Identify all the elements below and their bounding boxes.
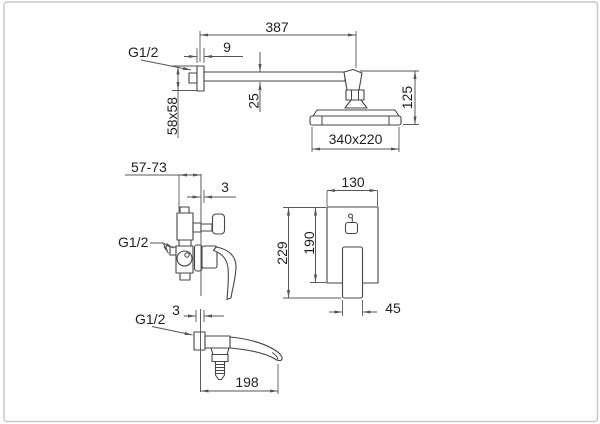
diverter-knob-front xyxy=(346,223,358,234)
spout-under-flange xyxy=(212,355,228,362)
diverter-body xyxy=(177,213,193,240)
dim-plate-width-label: 130 xyxy=(341,174,365,190)
wall-flange xyxy=(197,66,204,91)
shower-arm xyxy=(204,72,345,81)
diverter-knob xyxy=(213,214,225,234)
dimensional-drawing-svg: 387 G1/2 9 25 58x58 125 340x220 xyxy=(0,0,600,424)
dim-spout-length-label: 198 xyxy=(235,374,259,390)
mixer-side-view: 57-73 3 G1/2 xyxy=(118,159,236,300)
thread-label-spout: G1/2 xyxy=(135,311,166,327)
thread-label-mixer: G1/2 xyxy=(118,234,149,250)
image-frame-border xyxy=(4,2,598,422)
diverter-cap xyxy=(180,207,189,213)
dim-flange-size-label: 58x58 xyxy=(164,97,180,135)
dim-drop-height-label: 125 xyxy=(399,86,415,110)
shower-head-body xyxy=(310,116,401,125)
dim-plate-height-label: 190 xyxy=(301,231,317,255)
spout-blade xyxy=(230,337,282,361)
dim-handle-width-label: 45 xyxy=(385,300,401,316)
dim-wall-offset-label: 3 xyxy=(221,179,229,195)
dim-depth-range-label: 57-73 xyxy=(131,159,167,175)
spout-under-block xyxy=(211,348,229,355)
dim-overall-height-label: 229 xyxy=(274,241,290,265)
head-neck xyxy=(345,100,367,108)
thread-leader-line xyxy=(141,60,191,70)
dim-flange-thickness-label: 9 xyxy=(223,39,231,55)
shower-arm-view: 387 G1/2 9 25 58x58 125 340x220 xyxy=(128,19,419,152)
valve-drain-stub xyxy=(180,273,190,280)
arm-elbow xyxy=(344,70,362,91)
shower-head-top xyxy=(313,110,399,116)
dim-arm-length-label: 387 xyxy=(265,19,289,35)
inlet-port-circle xyxy=(177,251,192,266)
spout-flange xyxy=(194,332,205,350)
dim-wall-offset-label: 3 xyxy=(172,302,180,318)
spout-view: 3 G1/2 198 xyxy=(135,302,282,394)
mixer-front-view: 130 229 190 45 xyxy=(274,174,401,316)
spout-body xyxy=(205,336,230,348)
technical-drawing-canvas: 387 G1/2 9 25 58x58 125 340x220 xyxy=(0,0,600,424)
connector-nut xyxy=(346,90,364,100)
diverter-stem xyxy=(201,224,212,231)
dim-head-size-label: 340x220 xyxy=(329,131,383,147)
thread-leader-line xyxy=(152,327,193,336)
thread-stub xyxy=(189,73,197,83)
valve-neck xyxy=(179,240,191,246)
thread-label-shower: G1/2 xyxy=(128,44,159,60)
stem-collar xyxy=(193,223,201,232)
handle-front xyxy=(343,247,363,298)
dim-arm-profile-label: 25 xyxy=(246,93,262,109)
